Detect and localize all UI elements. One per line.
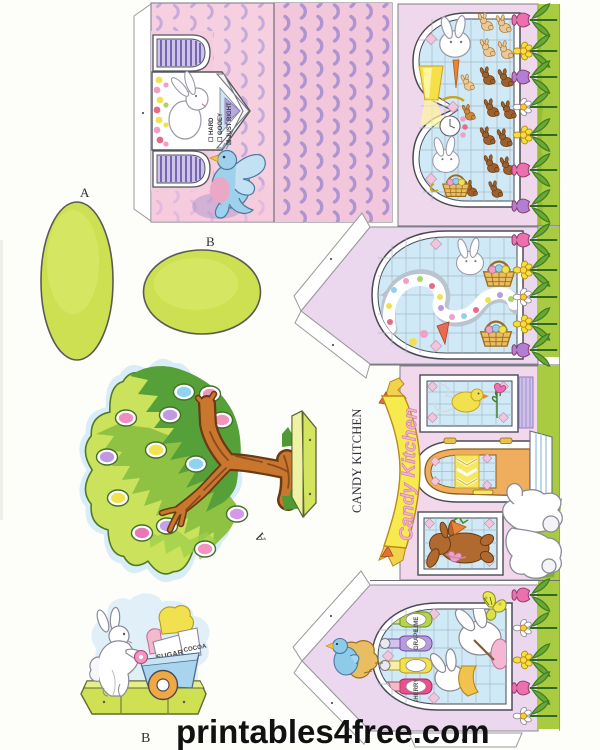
svg-text:GRAPE: GRAPE <box>414 629 420 650</box>
svg-text:A: A <box>80 185 90 200</box>
svg-text:☐ HARD: ☐ HARD <box>208 117 215 142</box>
svg-text:CHERRY: CHERRY <box>414 679 420 704</box>
svg-text:B: B <box>141 731 150 746</box>
svg-text:printables4free.com: printables4free.com <box>176 713 490 750</box>
svg-text:CANDY KITCHEN: CANDY KITCHEN <box>350 408 364 513</box>
svg-text:☐ GOOEY: ☐ GOOEY <box>217 113 224 142</box>
svg-text:☒ JUST RIGHT: ☒ JUST RIGHT <box>226 102 233 145</box>
svg-text:B: B <box>206 234 215 249</box>
